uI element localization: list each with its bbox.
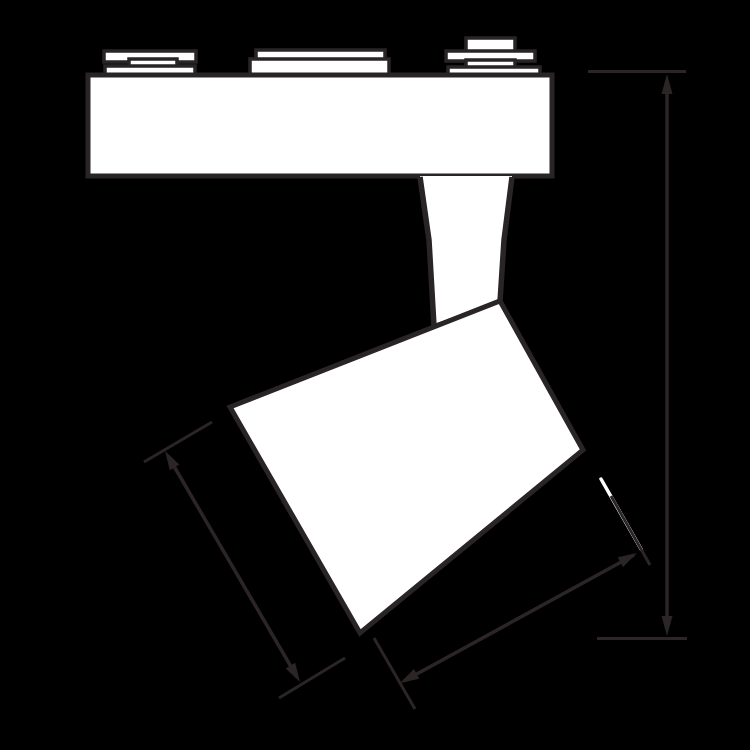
overall-height-dimension: [588, 72, 687, 639]
face-width-arrow-right: [618, 553, 637, 567]
track-rail: [88, 75, 552, 176]
height-arrow-up: [662, 74, 673, 94]
contact-stack-middle: [250, 50, 389, 76]
height-arrow-down: [662, 616, 673, 636]
contact-stack-right: [446, 38, 540, 76]
face-width-arrow-left: [400, 669, 419, 683]
head-length-arrow-upper: [165, 451, 179, 470]
contact-stack-left: [104, 51, 196, 76]
face-width-witness-left: [374, 638, 415, 709]
head-length-witness-top: [144, 422, 212, 462]
lamp-head: [230, 301, 583, 633]
face-width-dimension-line: [404, 555, 634, 681]
track-light-technical-drawing: [0, 0, 750, 750]
track-contacts: [104, 38, 540, 76]
head-length-arrow-lower: [286, 663, 300, 682]
diagram-canvas: [0, 0, 750, 750]
